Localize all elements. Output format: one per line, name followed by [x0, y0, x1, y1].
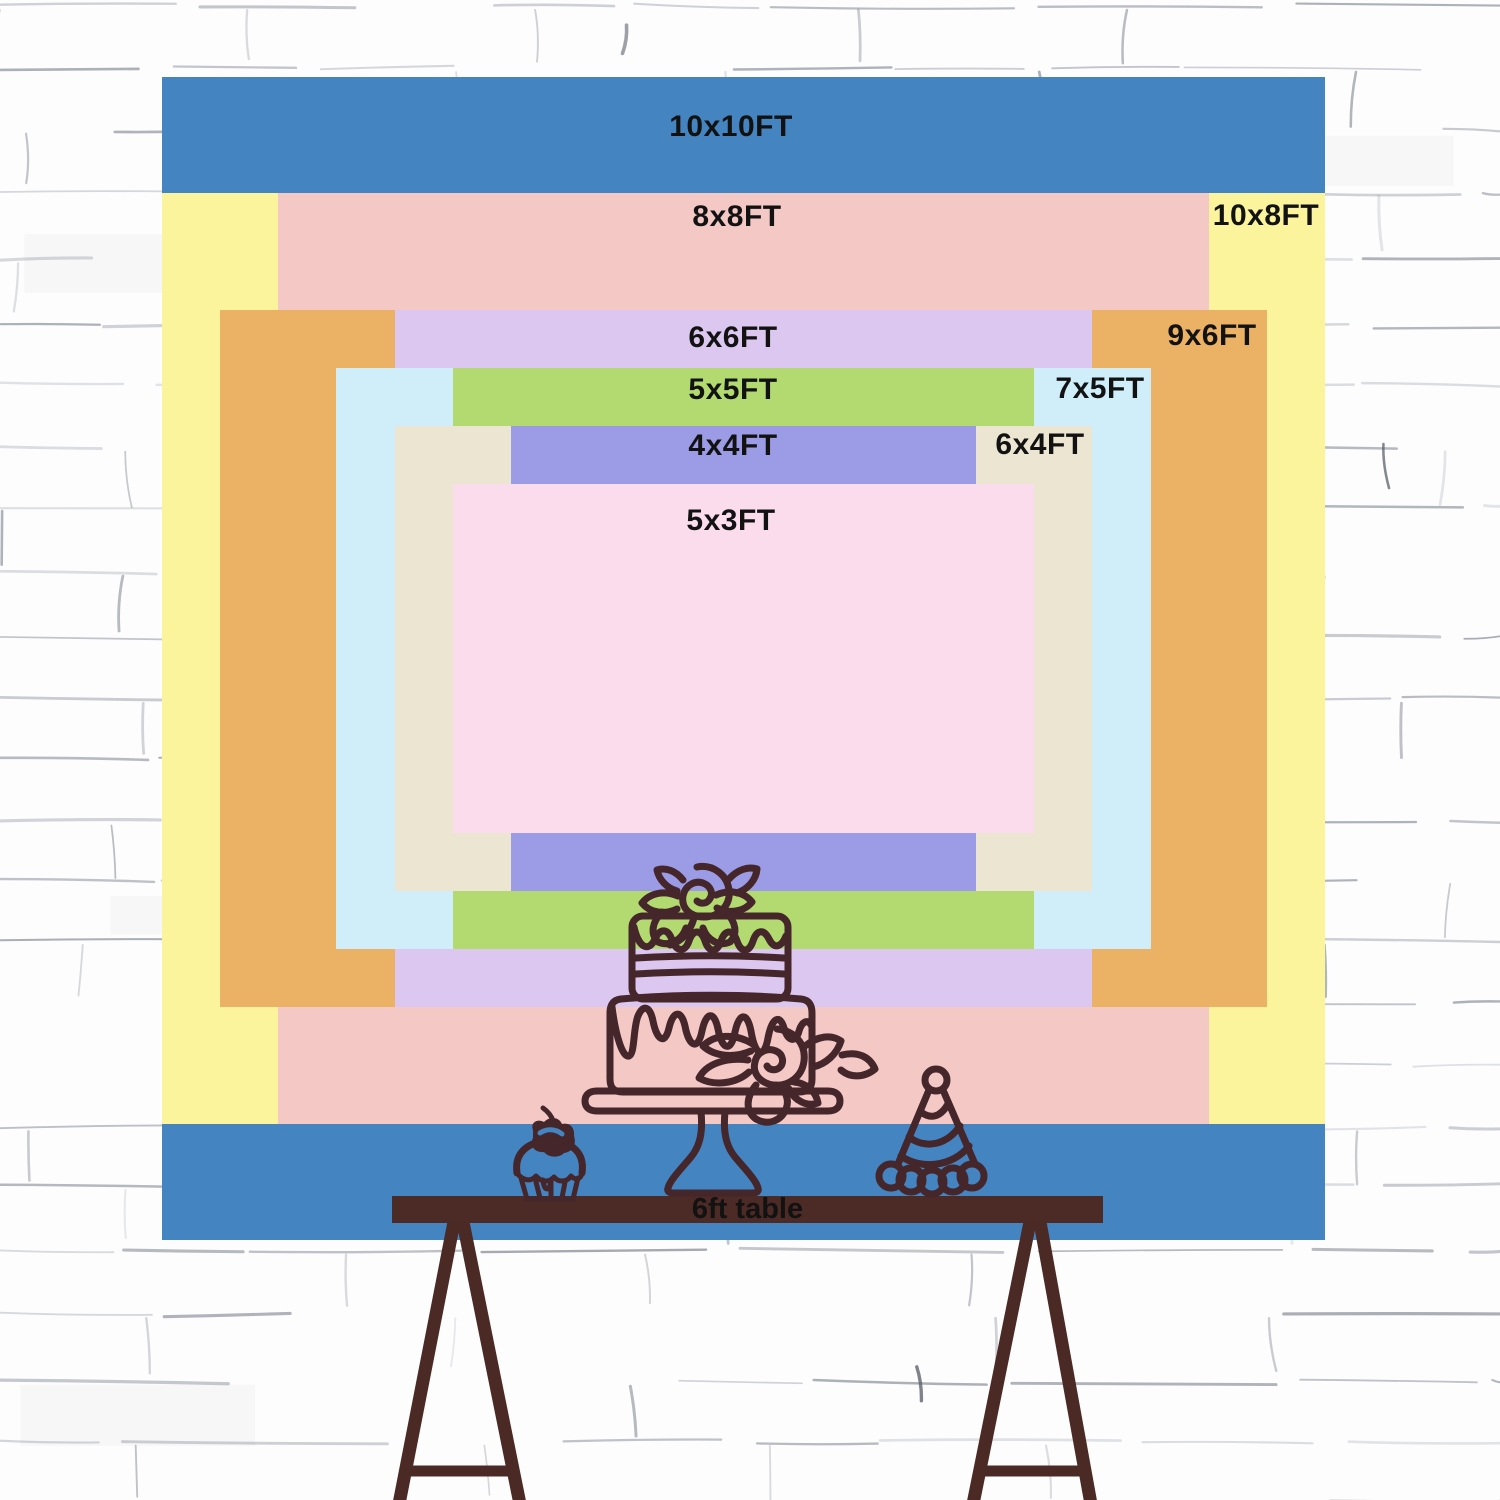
table-leg — [1040, 1222, 1091, 1500]
cake-illustration — [585, 866, 875, 1193]
party-hat-illustration — [879, 1069, 984, 1194]
illustration-overlay — [0, 0, 1500, 1500]
table-leg — [399, 1222, 454, 1500]
table-leg — [463, 1222, 520, 1500]
hat-trim — [879, 1164, 984, 1194]
cake-stand — [585, 1091, 840, 1193]
table-length-label: 6ft table — [392, 1196, 1103, 1223]
cupcake-rim — [517, 1173, 582, 1181]
cherry — [532, 1118, 575, 1157]
hat-stripe — [901, 1146, 969, 1165]
table-leg — [973, 1222, 1030, 1500]
cupcake-illustration — [517, 1108, 583, 1199]
hat-stripe — [909, 1126, 960, 1144]
backdrop-size-chart: 10x10FT10x8FT8x8FT9x6FT6x6FT7x5FT5x5FT6x… — [0, 0, 1500, 1500]
table-length-text: 6ft table — [692, 1193, 803, 1226]
table-legs — [399, 1222, 1091, 1500]
